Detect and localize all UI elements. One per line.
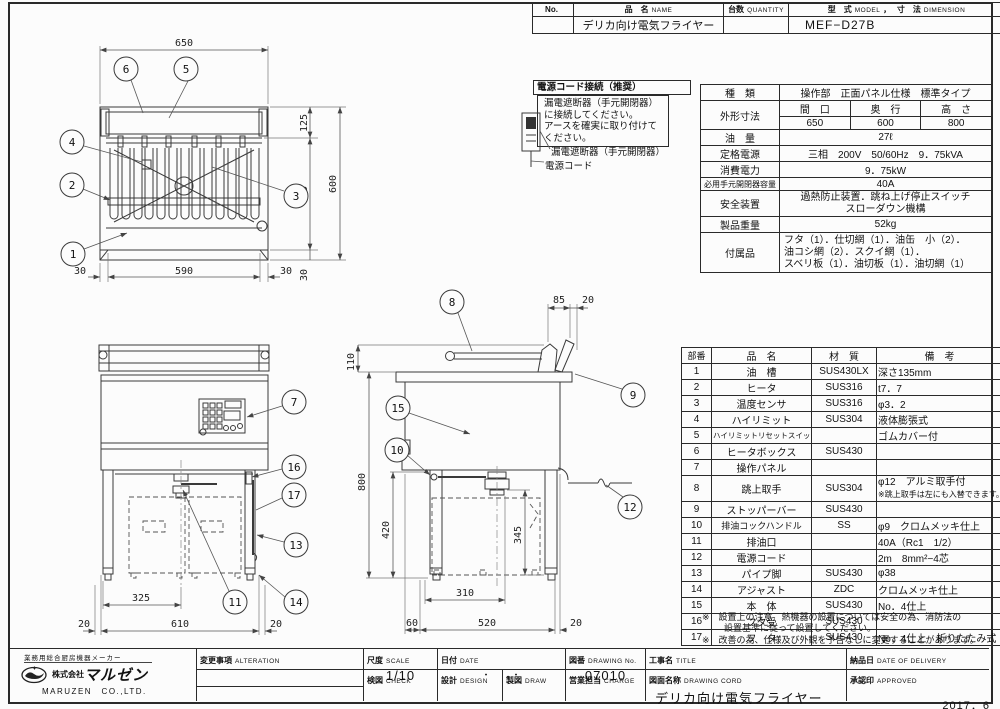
spec-sublabel: 高 さ [921,101,992,117]
date-cell: 日付DATE ・ ・ [437,649,565,669]
dim-label: 85 [553,295,565,306]
project-title-label-en: TITLE [676,658,696,665]
part-no: 13 [682,566,712,582]
spec-sublabel: 間 口 [780,101,851,117]
note-line: ※ 設置上の注意 熱機器の設置については安全の為、消防法の [702,612,994,623]
dim-label: 345 [513,526,524,544]
spec-label: 必用手元開閉器容量 [701,178,780,191]
part-name: パイプ脚 [712,566,812,582]
part-no: 8 [682,476,712,502]
part-name: 跳上取手 [712,476,812,502]
table-row: 種 類 操作部 正面パネル仕様 標準タイプ [701,85,992,101]
part-no: 1 [682,364,712,380]
callout-number: 7 [291,396,298,409]
table-row: 油 量 27ℓ [701,130,992,146]
spec-value: 800 [921,117,992,130]
alteration-cell: 変更事項ALTERATION [196,649,363,701]
dim-label-jp: 寸 法 [897,5,921,14]
drawing-no-label-en: DRAWING No. [588,658,637,665]
spec-value-line: 油コシ網（2）．スクイ網（1）． [784,247,990,259]
part-material: SUS316 [812,380,877,396]
dim-label: 600 [328,175,339,193]
part-name: アジャスト [712,582,812,598]
part-material: SUS304 [812,476,877,502]
note-line: ※ 改善の為、仕様及び外観を予告なしに変更することがあります。 [702,635,994,646]
table-row: 5ハイリミットリセットスイッチゴムカバー付 [682,428,1000,444]
draw-label-en: DRAW [525,678,547,685]
table-row: 12電源コード2m 8mm²−4芯 [682,550,1000,566]
part-name: 油 槽 [712,364,812,380]
part-name: ヒータ [712,380,812,396]
part-no: 5 [682,428,712,444]
table-row: 製品重量 52kg [701,217,992,233]
note-line: 設置基準に従って設置してください。 [702,623,994,634]
callout-number: 15 [391,402,404,415]
table-row: 10排油コックハンドルSSφ9 クロムメッキ仕上 [682,518,1000,534]
callout-number: 5 [183,63,190,76]
dim-label: 520 [478,618,496,629]
front-view-drawing: 325 20 610 20 7 16 17 13 11 14 [75,335,315,670]
product-name: デリカ向け電気フライヤー [574,17,724,34]
model-label-jp: 型 式 [828,5,852,14]
dim-label: 650 [175,38,193,49]
part-name: 電源コード [712,550,812,566]
dim-label: 590 [175,266,193,277]
spec-label: 付属品 [701,233,780,273]
installation-notes: ※ 設置上の注意 熱機器の設置については安全の為、消防法の 設置基準に従って設置… [702,612,994,646]
model-value: MEF−D27B [789,17,1000,34]
part-no: 7 [682,460,712,476]
spec-value: 52kg [780,217,992,233]
maruzen-logo-icon [20,666,50,684]
part-no: 12 [682,550,712,566]
design-label-jp: 設計 [441,676,457,685]
delivery-label-jp: 納品日 [850,656,874,665]
callout-number: 3 [293,190,300,203]
part-material: SUS430 [812,566,877,582]
alteration-rule [197,669,364,670]
drawing-name-label-jp: 図面名称 [649,676,681,685]
part-no: 9 [682,502,712,518]
charge-cell: 営業担当CHARGE [565,669,645,701]
table-row: 必用手元開閉器容量 40A [701,178,992,191]
drawing-name-value: デリカ向け電気フライヤー [649,688,843,707]
callout-number: 6 [123,63,130,76]
maker-block: 業務用総合厨房機器メーカー 株式会社 マルゼン MARUZEN CO.,LTD. [8,649,196,701]
part-note-line: ※跳上取手は左にも入替できます。 [878,489,1000,501]
date-label-jp: 日付 [441,656,457,665]
table-row: 14アジャストZDCクロムメッキ仕上 [682,582,1000,598]
table-row: 安全装置 過熱防止装置．跳ね上げ停止スイッチ スローダウン機構 [701,191,992,217]
check-label-jp: 検図 [367,676,383,685]
table-row: 2ヒータSUS316t7．7 [682,380,1000,396]
spec-sublabel: 奥 行 [850,101,921,117]
breaker-label: 漏電遮断器（手元開閉器） [551,144,665,158]
part-note: 2m 8mm²−4芯 [877,550,1000,566]
col-header: 品 名 [712,348,812,364]
dim-label: 20 [270,619,282,630]
part-no: 4 [682,412,712,428]
company-name-en: MARUZEN CO.,LTD. [42,686,196,697]
part-no: 10 [682,518,712,534]
dim-label: 125 [299,114,310,132]
part-no: 6 [682,444,712,460]
callout-number: 17 [287,489,300,502]
qty-label-en: QUANTITY [747,7,784,14]
spec-value: 過熱防止装置．跳ね上げ停止スイッチ スローダウン機構 [780,191,992,217]
part-material [812,460,877,476]
part-material: SUS430LX [812,364,877,380]
title-block: 業務用総合厨房機器メーカー 株式会社 マルゼン MARUZEN CO.,LTD.… [8,648,989,701]
alteration-label-jp: 変更事項 [200,656,232,665]
dim-label: 420 [381,521,392,539]
part-name: 温度センサ [712,396,812,412]
part-name: ハイリミットリセットスイッチ [712,428,812,444]
side-view-drawing: 110 800 420 345 85 20 310 60 520 20 8 9 … [330,282,650,667]
maker-tagline: 業務用総合厨房機器メーカー [24,652,152,663]
dim-label: 30 [280,266,292,277]
dim-label: 30 [299,269,310,281]
part-name: 排油口 [712,534,812,550]
table-row: 11排油口40A（Rc1 1/2） [682,534,1000,550]
comma: ， [883,5,891,14]
scale-cell: 尺度SCALE 1/10 [363,649,437,669]
name-label-jp: 品 名 [625,5,649,14]
spec-value: 600 [850,117,921,130]
spec-value: 27ℓ [780,130,992,146]
alteration-rule [197,686,364,687]
power-note-body: 漏電遮断器（手元開閉器） に接続してください。 アースを確実に取り付けて くださ… [537,95,669,147]
part-note: 液体膨張式 [877,412,1000,428]
spec-value: 三相 200V 50/60Hz 9．75kVA [780,146,992,162]
spec-value-line: 過熱防止装置．跳ね上げ停止スイッチ [781,192,990,204]
power-note-line: に接続してください。 [544,110,668,122]
table-row: デリカ向け電気フライヤー MEF−D27B [533,17,1000,34]
dim-label: 20 [78,619,90,630]
drawing-no-cell: 図番DRAWING No. 07010 [565,649,645,669]
spec-value-line: スベリ板（1）．油切板（1）．油切網（1） [784,259,990,271]
power-note-line: 漏電遮断器（手元開閉器） [544,98,668,110]
draw-cell: 製図DRAW [502,669,565,701]
dim-label: 110 [346,353,357,371]
dim-label: 610 [171,619,189,630]
part-material [812,534,877,550]
power-note-line: ください。 [544,133,668,145]
part-note: 深さ135mm [877,364,1000,380]
callout-number: 11 [228,596,241,609]
part-no: 14 [682,582,712,598]
part-name: ヒータボックス [712,444,812,460]
part-note: t7．7 [877,380,1000,396]
callout-number: 8 [449,296,456,309]
table-row: 7操作パネル [682,460,1000,476]
callout-number: 1 [70,248,77,261]
part-material: SUS304 [812,412,877,428]
spec-value: 操作部 正面パネル仕様 標準タイプ [780,85,992,101]
table-row: 4ハイリミットSUS304液体膨張式 [682,412,1000,428]
parts-table: 部番 品 名 材 質 備 考 1油 槽SUS430LX深さ135mm 2ヒータS… [681,347,1000,646]
table-row: 付属品 フタ（1）．仕切網（1）．油缶 小（2）． 油コシ網（2）．スクイ網（1… [701,233,992,273]
delivery-cell: 納品日DATE OF DELIVERY [846,649,989,669]
charge-label-jp: 営業担当 [569,676,601,685]
project-title-cell: 工事名TITLE [645,649,846,669]
callout-number: 10 [390,444,403,457]
drawing-no-label-jp: 図番 [569,656,585,665]
callout-number: 2 [69,179,76,192]
part-material [812,550,877,566]
spec-value-line: フタ（1）．仕切網（1）．油缶 小（2）． [784,235,990,247]
drawing-name-cell: 図面名称DRAWING CORD デリカ向け電気フライヤー [645,669,846,701]
table-row: 8跳上取手SUS304 φ12 アルミ取手付 ※跳上取手は左にも入替できます。 [682,476,1000,502]
table-row: No. 品 名NAME 台数QUANTITY 型 式MODEL ， 寸 法DIM… [533,3,1000,17]
part-name: ハイリミット [712,412,812,428]
spec-value-line: スローダウン機構 [781,204,990,216]
power-note-line: アースを確実に取り付けて [544,121,668,133]
part-material: SUS430 [812,444,877,460]
spec-table: 種 類 操作部 正面パネル仕様 標準タイプ 外形寸法 間 口 奥 行 高 さ 6… [700,84,992,273]
delivery-label-en: DATE OF DELIVERY [877,658,947,665]
col-header: 材 質 [812,348,877,364]
scale-label-jp: 尺度 [367,656,383,665]
spec-label: 外形寸法 [701,101,780,130]
callout-number: 13 [289,539,302,552]
approved-label-en: APPROVED [877,678,917,685]
date-label-en: DATE [460,658,479,665]
part-note: クロムメッキ仕上 [877,582,1000,598]
alteration-label-en: ALTERATION [235,658,280,665]
table-row: 3温度センサSUS316φ3．2 [682,396,1000,412]
spec-value: 9．75kW [780,162,992,178]
check-label-en: CHECK [386,678,411,685]
part-note: φ3．2 [877,396,1000,412]
part-note [877,502,1000,518]
part-note: φ38 [877,566,1000,582]
spec-label: 安全装置 [701,191,780,217]
dim-label: 800 [357,473,368,491]
dim-label: 60 [406,618,418,629]
table-row: 1油 槽SUS430LX深さ135mm [682,364,1000,380]
spec-value: 650 [780,117,851,130]
part-note: φ9 クロムメッキ仕上 [877,518,1000,534]
part-note: φ12 アルミ取手付 ※跳上取手は左にも入替できます。 [877,476,1000,502]
draw-label-jp: 製図 [506,676,522,685]
callout-number: 4 [69,136,76,149]
callout-number: 16 [287,461,300,474]
part-material [812,428,877,444]
part-note-line: φ12 アルミ取手付 [878,477,1000,489]
name-label-en: NAME [652,7,673,14]
dim-label: 20 [570,618,582,629]
part-note [877,444,1000,460]
callout-number: 12 [623,501,636,514]
spec-label: 油 量 [701,130,780,146]
charge-label-en: CHARGE [604,678,635,685]
company-name-jp: マルゼン [84,664,148,685]
col-header: 部番 [682,348,712,364]
part-material: SS [812,518,877,534]
company-prefix: 株式会社 [52,669,84,680]
callout-number: 9 [630,389,637,402]
part-note: 40A（Rc1 1/2） [877,534,1000,550]
dim-label: 20 [582,295,594,306]
table-row: 定格電源 三相 200V 50/60Hz 9．75kVA [701,146,992,162]
callout-number: 14 [289,596,303,609]
design-cell: 設計DESIGN [437,669,502,701]
part-no: 11 [682,534,712,550]
table-row: 9ストッパーバーSUS430 [682,502,1000,518]
table-row: 外形寸法 間 口 奥 行 高 さ [701,101,992,117]
drawing-sheet: No. 品 名NAME 台数QUANTITY 型 式MODEL ， 寸 法DIM… [0,0,1000,709]
part-name: 操作パネル [712,460,812,476]
project-title-label-jp: 工事名 [649,656,673,665]
maker-logo-row: 株式会社 マルゼン [20,664,196,685]
col-header: 備 考 [877,348,1000,364]
table-row: 消費電力 9．75kW [701,162,992,178]
scale-label-en: SCALE [386,658,410,665]
table-row: 13パイプ脚SUS430φ38 [682,566,1000,582]
issue-date: 2017．6 [942,697,990,709]
part-material: ZDC [812,582,877,598]
part-name: ストッパーバー [712,502,812,518]
dim-label: 325 [132,593,150,604]
part-no: 3 [682,396,712,412]
table-row: 6ヒータボックスSUS430 [682,444,1000,460]
part-name: 排油コックハンドル [712,518,812,534]
model-label-en: MODEL [855,7,881,14]
cord-label: 電源コード [545,158,593,172]
approved-label-jp: 承認印 [850,676,874,685]
design-label-en: DESIGN [460,678,488,685]
part-material: SUS316 [812,396,877,412]
spec-value: 40A [780,178,992,191]
table-header-row: 部番 品 名 材 質 備 考 [682,348,1000,364]
drawing-name-label-en: DRAWING CORD [684,678,742,685]
qty-label-jp: 台数 [728,5,744,14]
spec-label: 製品重量 [701,217,780,233]
dim-label: 310 [456,588,474,599]
spec-value: フタ（1）．仕切網（1）．油缶 小（2）． 油コシ網（2）．スクイ網（1）． ス… [780,233,992,273]
no-label: No. [545,5,558,14]
part-no: 2 [682,380,712,396]
title-header-table: No. 品 名NAME 台数QUANTITY 型 式MODEL ， 寸 法DIM… [532,2,1000,34]
part-note: ゴムカバー付 [877,428,1000,444]
spec-label: 種 類 [701,85,780,101]
check-cell: 検図CHECK [363,669,437,701]
top-view-drawing: 650 125 445 600 30 30 590 30 6 5 4 2 1 3 [30,30,370,302]
part-material: SUS430 [812,502,877,518]
dim-label-en: DIMENSION [924,7,965,14]
power-note-title: 電源コード接続（推奨） [533,80,691,95]
part-note [877,460,1000,476]
spec-label: 定格電源 [701,146,780,162]
dim-label: 30 [74,266,86,277]
spec-label: 消費電力 [701,162,780,178]
